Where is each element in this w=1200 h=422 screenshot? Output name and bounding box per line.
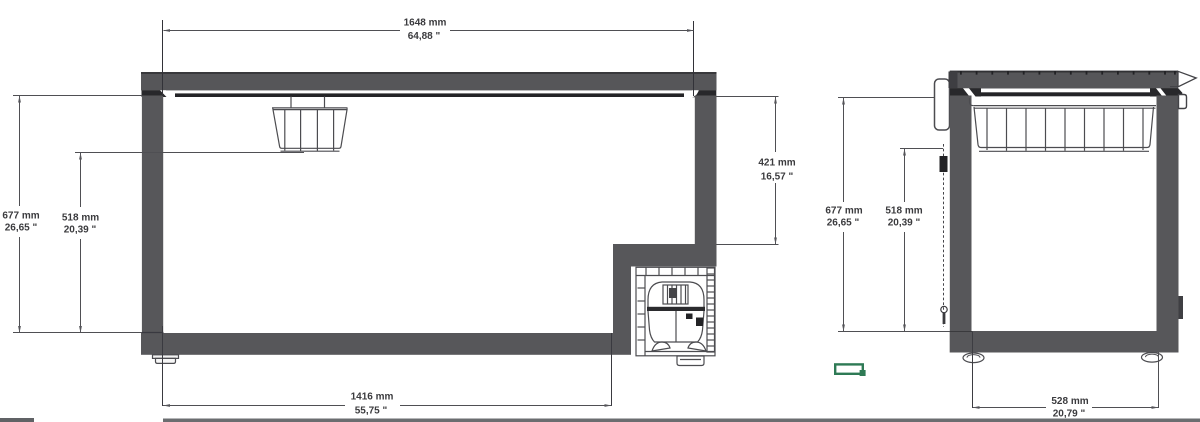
- svg-text:20,79 ": 20,79 ": [1053, 409, 1086, 420]
- svg-text:677 mm: 677 mm: [2, 211, 39, 222]
- svg-text:421 mm: 421 mm: [758, 158, 795, 169]
- svg-text:20,39 ": 20,39 ": [64, 225, 97, 236]
- svg-text:26,65 ": 26,65 ": [827, 218, 860, 229]
- svg-text:518 mm: 518 mm: [62, 213, 99, 224]
- svg-text:1416 mm: 1416 mm: [351, 392, 394, 403]
- svg-text:16,57 ": 16,57 ": [761, 172, 794, 183]
- svg-text:677 mm: 677 mm: [825, 206, 862, 217]
- svg-text:20,39 ": 20,39 ": [888, 218, 921, 229]
- svg-text:26,65 ": 26,65 ": [5, 223, 38, 234]
- svg-text:64,88 ": 64,88 ": [408, 31, 441, 42]
- svg-text:528 mm: 528 mm: [1051, 396, 1088, 407]
- svg-text:518 mm: 518 mm: [885, 206, 922, 217]
- svg-text:55,75 ": 55,75 ": [355, 406, 388, 417]
- svg-text:1648 mm: 1648 mm: [404, 18, 447, 29]
